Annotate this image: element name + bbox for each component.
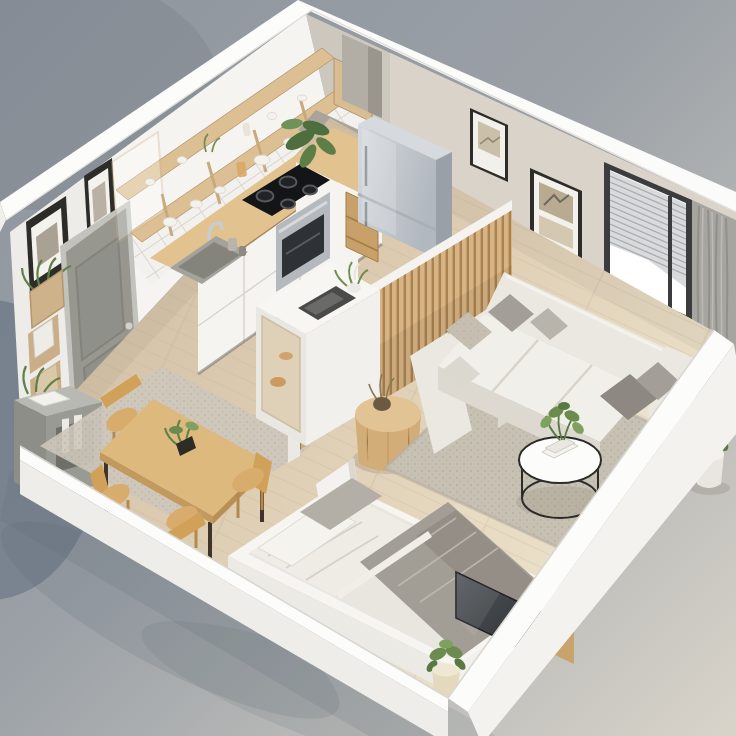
side-table-vase (373, 397, 391, 411)
render-canvas (0, 0, 736, 736)
bedfoot-pot-rim (432, 664, 460, 677)
glass-dish-2 (279, 352, 293, 360)
island-vase (347, 283, 361, 293)
canister-2 (239, 246, 246, 256)
canister-1 (228, 238, 237, 251)
door-handle (126, 323, 133, 330)
hood-chimney-side (368, 46, 382, 118)
glass-dish-1 (270, 377, 286, 387)
apartment-isometric-render (0, 0, 736, 736)
fridge-sheen (362, 128, 396, 236)
